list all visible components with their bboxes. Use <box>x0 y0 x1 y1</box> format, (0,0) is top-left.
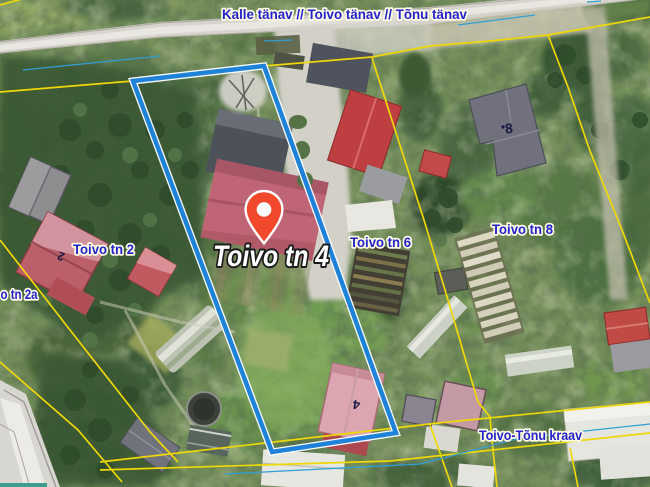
svg-text:Toivo tn 8: Toivo tn 8 <box>492 222 553 237</box>
svg-text:Toivo tn 2: Toivo tn 2 <box>73 242 134 257</box>
svg-text:Toivo tn 4: Toivo tn 4 <box>213 240 329 273</box>
svg-text:Toivo-Tõnu kraav: Toivo-Tõnu kraav <box>479 428 582 443</box>
svg-text:o tn 2a: o tn 2a <box>1 287 38 302</box>
svg-text:Kalle tänav // Toivo tänav //: Kalle tänav // Toivo tänav // Tõnu tänav <box>222 7 467 22</box>
svg-text:Toivo tn 6: Toivo tn 6 <box>350 235 411 250</box>
